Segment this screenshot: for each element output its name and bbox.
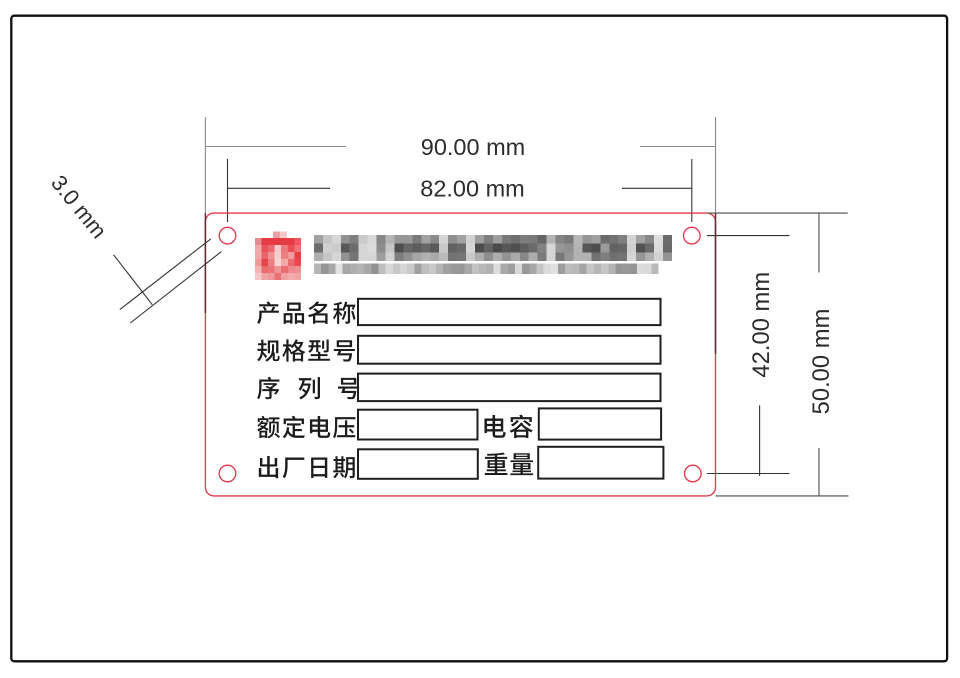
svg-text:42.00 mm: 42.00 mm <box>748 272 775 378</box>
svg-text:90.00 mm: 90.00 mm <box>421 134 526 160</box>
svg-text:50.00 mm: 50.00 mm <box>808 309 835 415</box>
svg-text:82.00 mm: 82.00 mm <box>420 176 525 202</box>
